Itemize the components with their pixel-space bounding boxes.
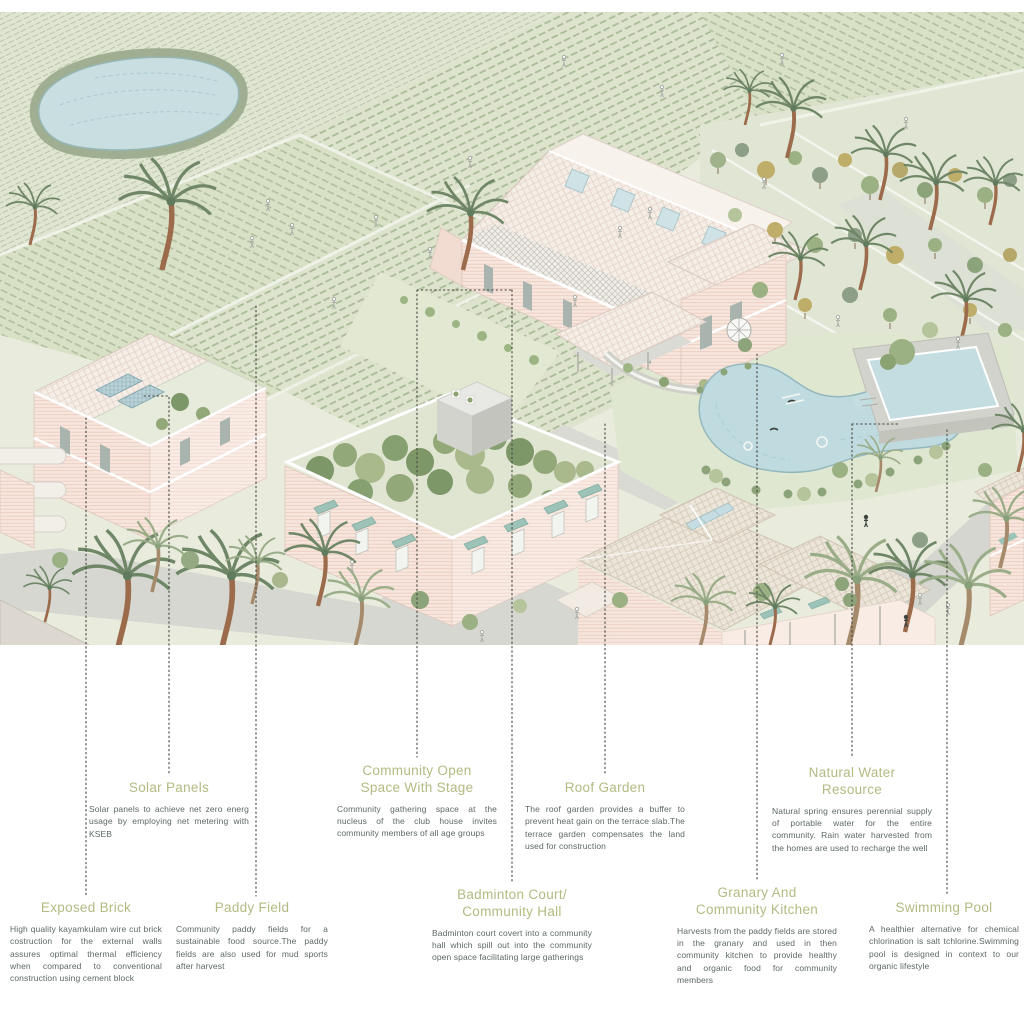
annotation-body: High quality kayamkulam wire cut brick c… bbox=[10, 923, 162, 985]
annotation-swimming-pool: Swimming Pool A healthier alternative fo… bbox=[869, 900, 1019, 972]
annotation-title: Swimming Pool bbox=[878, 900, 1010, 917]
annotation-roof-garden: Roof Garden The roof garden provides a b… bbox=[525, 780, 685, 852]
annotation-body: Solar panels to achieve net zero energ u… bbox=[89, 803, 249, 840]
annotation-title: Solar Panels bbox=[103, 780, 235, 797]
annotation-solar-panels: Solar Panels Solar panels to achieve net… bbox=[89, 780, 249, 840]
annotation-natural-water-resource: Natural Water Resource Natural spring en… bbox=[772, 765, 932, 854]
annotation-exposed-brick: Exposed Brick High quality kayamkulam wi… bbox=[10, 900, 162, 984]
annotation-paddy-field: Paddy Field Community paddy fields for a… bbox=[176, 900, 328, 972]
annotation-granary-community-kitchen: Granary And Community Kitchen Harvests f… bbox=[677, 885, 837, 986]
annotation-body: Community paddy fields for a sustainable… bbox=[176, 923, 328, 972]
annotation-title: Roof Garden bbox=[539, 780, 671, 797]
annotation-title: Paddy Field bbox=[186, 900, 318, 917]
annotation-body: Badminton court covert into a community … bbox=[432, 927, 592, 964]
annotation-community-open-space: Community Open Space With Stage Communit… bbox=[337, 763, 497, 840]
annotation-body: Natural spring ensures perennial supply … bbox=[772, 805, 932, 854]
annotation-title: Natural Water Resource bbox=[786, 765, 918, 799]
spiral-staircase bbox=[727, 318, 751, 342]
annotation-body: A healthier alternative for chemical chl… bbox=[869, 923, 1019, 972]
annotation-title: Granary And Community Kitchen bbox=[691, 885, 823, 919]
annotation-body: Harvests from the paddy fields are store… bbox=[677, 925, 837, 987]
annotation-badminton-court: Badminton Court/ Community Hall Badminto… bbox=[432, 887, 592, 964]
presentation-board: Solar Panels Solar panels to achieve net… bbox=[0, 0, 1024, 1024]
annotation-title: Community Open Space With Stage bbox=[351, 763, 483, 797]
pond bbox=[39, 57, 239, 150]
annotation-body: The roof garden provides a buffer to pre… bbox=[525, 803, 685, 852]
annotation-body: Community gathering space at the nucleus… bbox=[337, 803, 497, 840]
annotation-title: Badminton Court/ Community Hall bbox=[446, 887, 578, 921]
site-illustration bbox=[0, 0, 1024, 1024]
annotation-title: Exposed Brick bbox=[20, 900, 152, 917]
